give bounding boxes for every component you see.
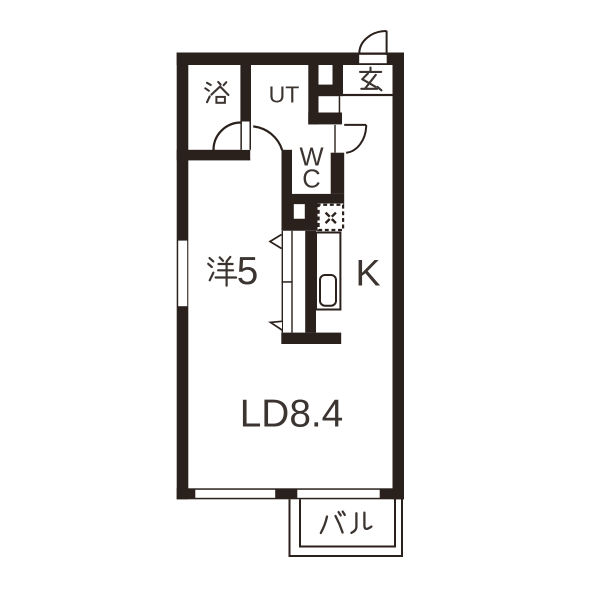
svg-text:UT: UT bbox=[269, 82, 300, 108]
svg-text:C: C bbox=[302, 166, 320, 194]
svg-text:K: K bbox=[355, 252, 380, 294]
svg-text:LD8.4: LD8.4 bbox=[240, 393, 344, 436]
svg-text:5: 5 bbox=[237, 250, 259, 293]
